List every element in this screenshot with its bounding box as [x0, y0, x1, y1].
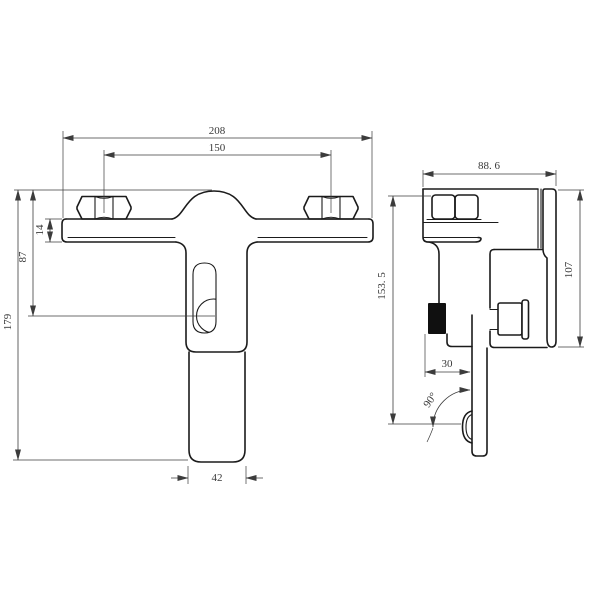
dim-hole-spacing-label: 150: [209, 142, 226, 154]
dim-hole-spacing: 150: [104, 142, 331, 213]
outlet-port: [463, 411, 473, 443]
dim-bar-thickness-label: 14: [34, 224, 46, 236]
dim-total-height: 153. 5: [376, 196, 461, 424]
dim-handle-length: 107: [558, 190, 584, 347]
dim-handle-length-label: 107: [563, 261, 575, 278]
dim-handle-width-label: 42: [212, 472, 223, 484]
dim-overall-height-label: 179: [2, 313, 14, 330]
technical-drawing-canvas: 208 150 14 87 179: [0, 0, 600, 600]
sensor-block: [428, 303, 446, 334]
mounting-bar: [62, 219, 373, 242]
dim-bar-to-outlet: 87: [14, 190, 215, 316]
cartridge-slot: [193, 263, 216, 333]
dim-overall-width-label: 208: [209, 125, 226, 137]
dim-overall-height: 179: [2, 190, 188, 460]
dim-overall-width: 208: [63, 125, 372, 218]
dim-bar-thickness: 14: [34, 219, 62, 242]
dim-bar-to-outlet-label: 87: [17, 251, 29, 263]
front-view: 208 150 14 87 179: [2, 125, 373, 484]
hex-nut-side: [423, 195, 498, 223]
body-dome: [172, 191, 256, 219]
dim-outlet-offset-label: 30: [442, 358, 454, 370]
dim-total-height-label: 153. 5: [376, 272, 388, 300]
dim-depth: 88. 6: [423, 160, 556, 187]
side-view: 88. 6 107 153. 5 30 90°: [376, 160, 584, 456]
diverter-knob: [490, 300, 529, 339]
handle-side: [543, 189, 556, 347]
dim-swivel-angle-label: 90°: [421, 391, 440, 411]
drawing-svg: 208 150 14 87 179: [0, 0, 600, 600]
dim-depth-label: 88. 6: [478, 160, 501, 172]
handle-front: [189, 352, 245, 462]
dim-handle-width: 42: [171, 466, 263, 484]
